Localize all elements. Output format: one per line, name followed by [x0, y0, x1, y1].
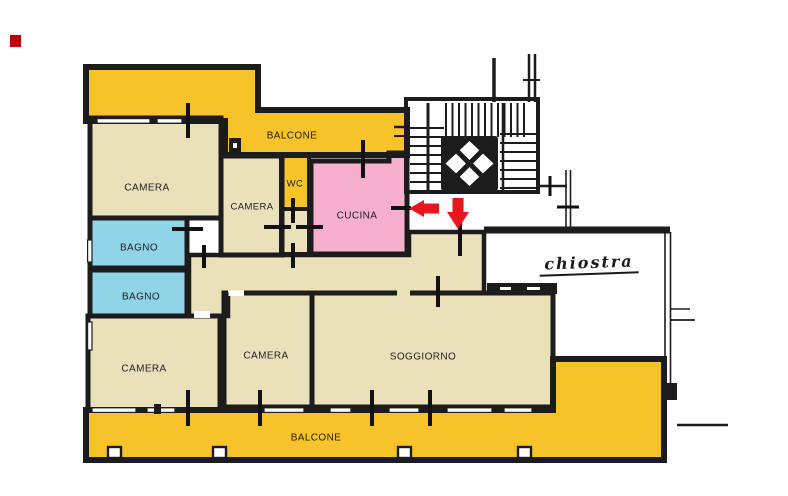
stairwell-drawing	[394, 54, 540, 192]
label-cucina: CUCINA	[337, 211, 378, 222]
floor-plan: BALCONE CAMERA CAMERA WC CUCINA BAGNO BA…	[0, 0, 788, 496]
label-balcone-top: BALCONE	[267, 131, 318, 142]
label-camera-top-left: CAMERA	[124, 183, 169, 194]
label-bagno-upper: BAGNO	[120, 243, 158, 254]
label-camera-top-middle: CAMERA	[230, 202, 273, 213]
room-camera-top-left	[90, 118, 221, 218]
label-camera-bottom-left: CAMERA	[121, 364, 166, 375]
label-balcone-bottom: BALCONE	[291, 433, 342, 444]
label-chiostra: chiostra	[539, 251, 639, 276]
red-square-marker	[10, 35, 21, 47]
elevator-icon	[441, 136, 498, 191]
floor-plan-drawing	[0, 0, 788, 496]
label-bagno-lower: BAGNO	[122, 292, 160, 303]
red-arrow-down-icon	[447, 198, 469, 229]
red-arrow-left-icon	[409, 200, 439, 217]
room-soggiorno	[312, 293, 553, 407]
label-soggiorno: SOGGIORNO	[390, 352, 456, 363]
chiostra-lower-wall	[487, 283, 557, 294]
label-wc: WC	[287, 179, 304, 190]
label-camera-bottom-middle: CAMERA	[243, 351, 288, 362]
room-cucina	[311, 153, 407, 254]
